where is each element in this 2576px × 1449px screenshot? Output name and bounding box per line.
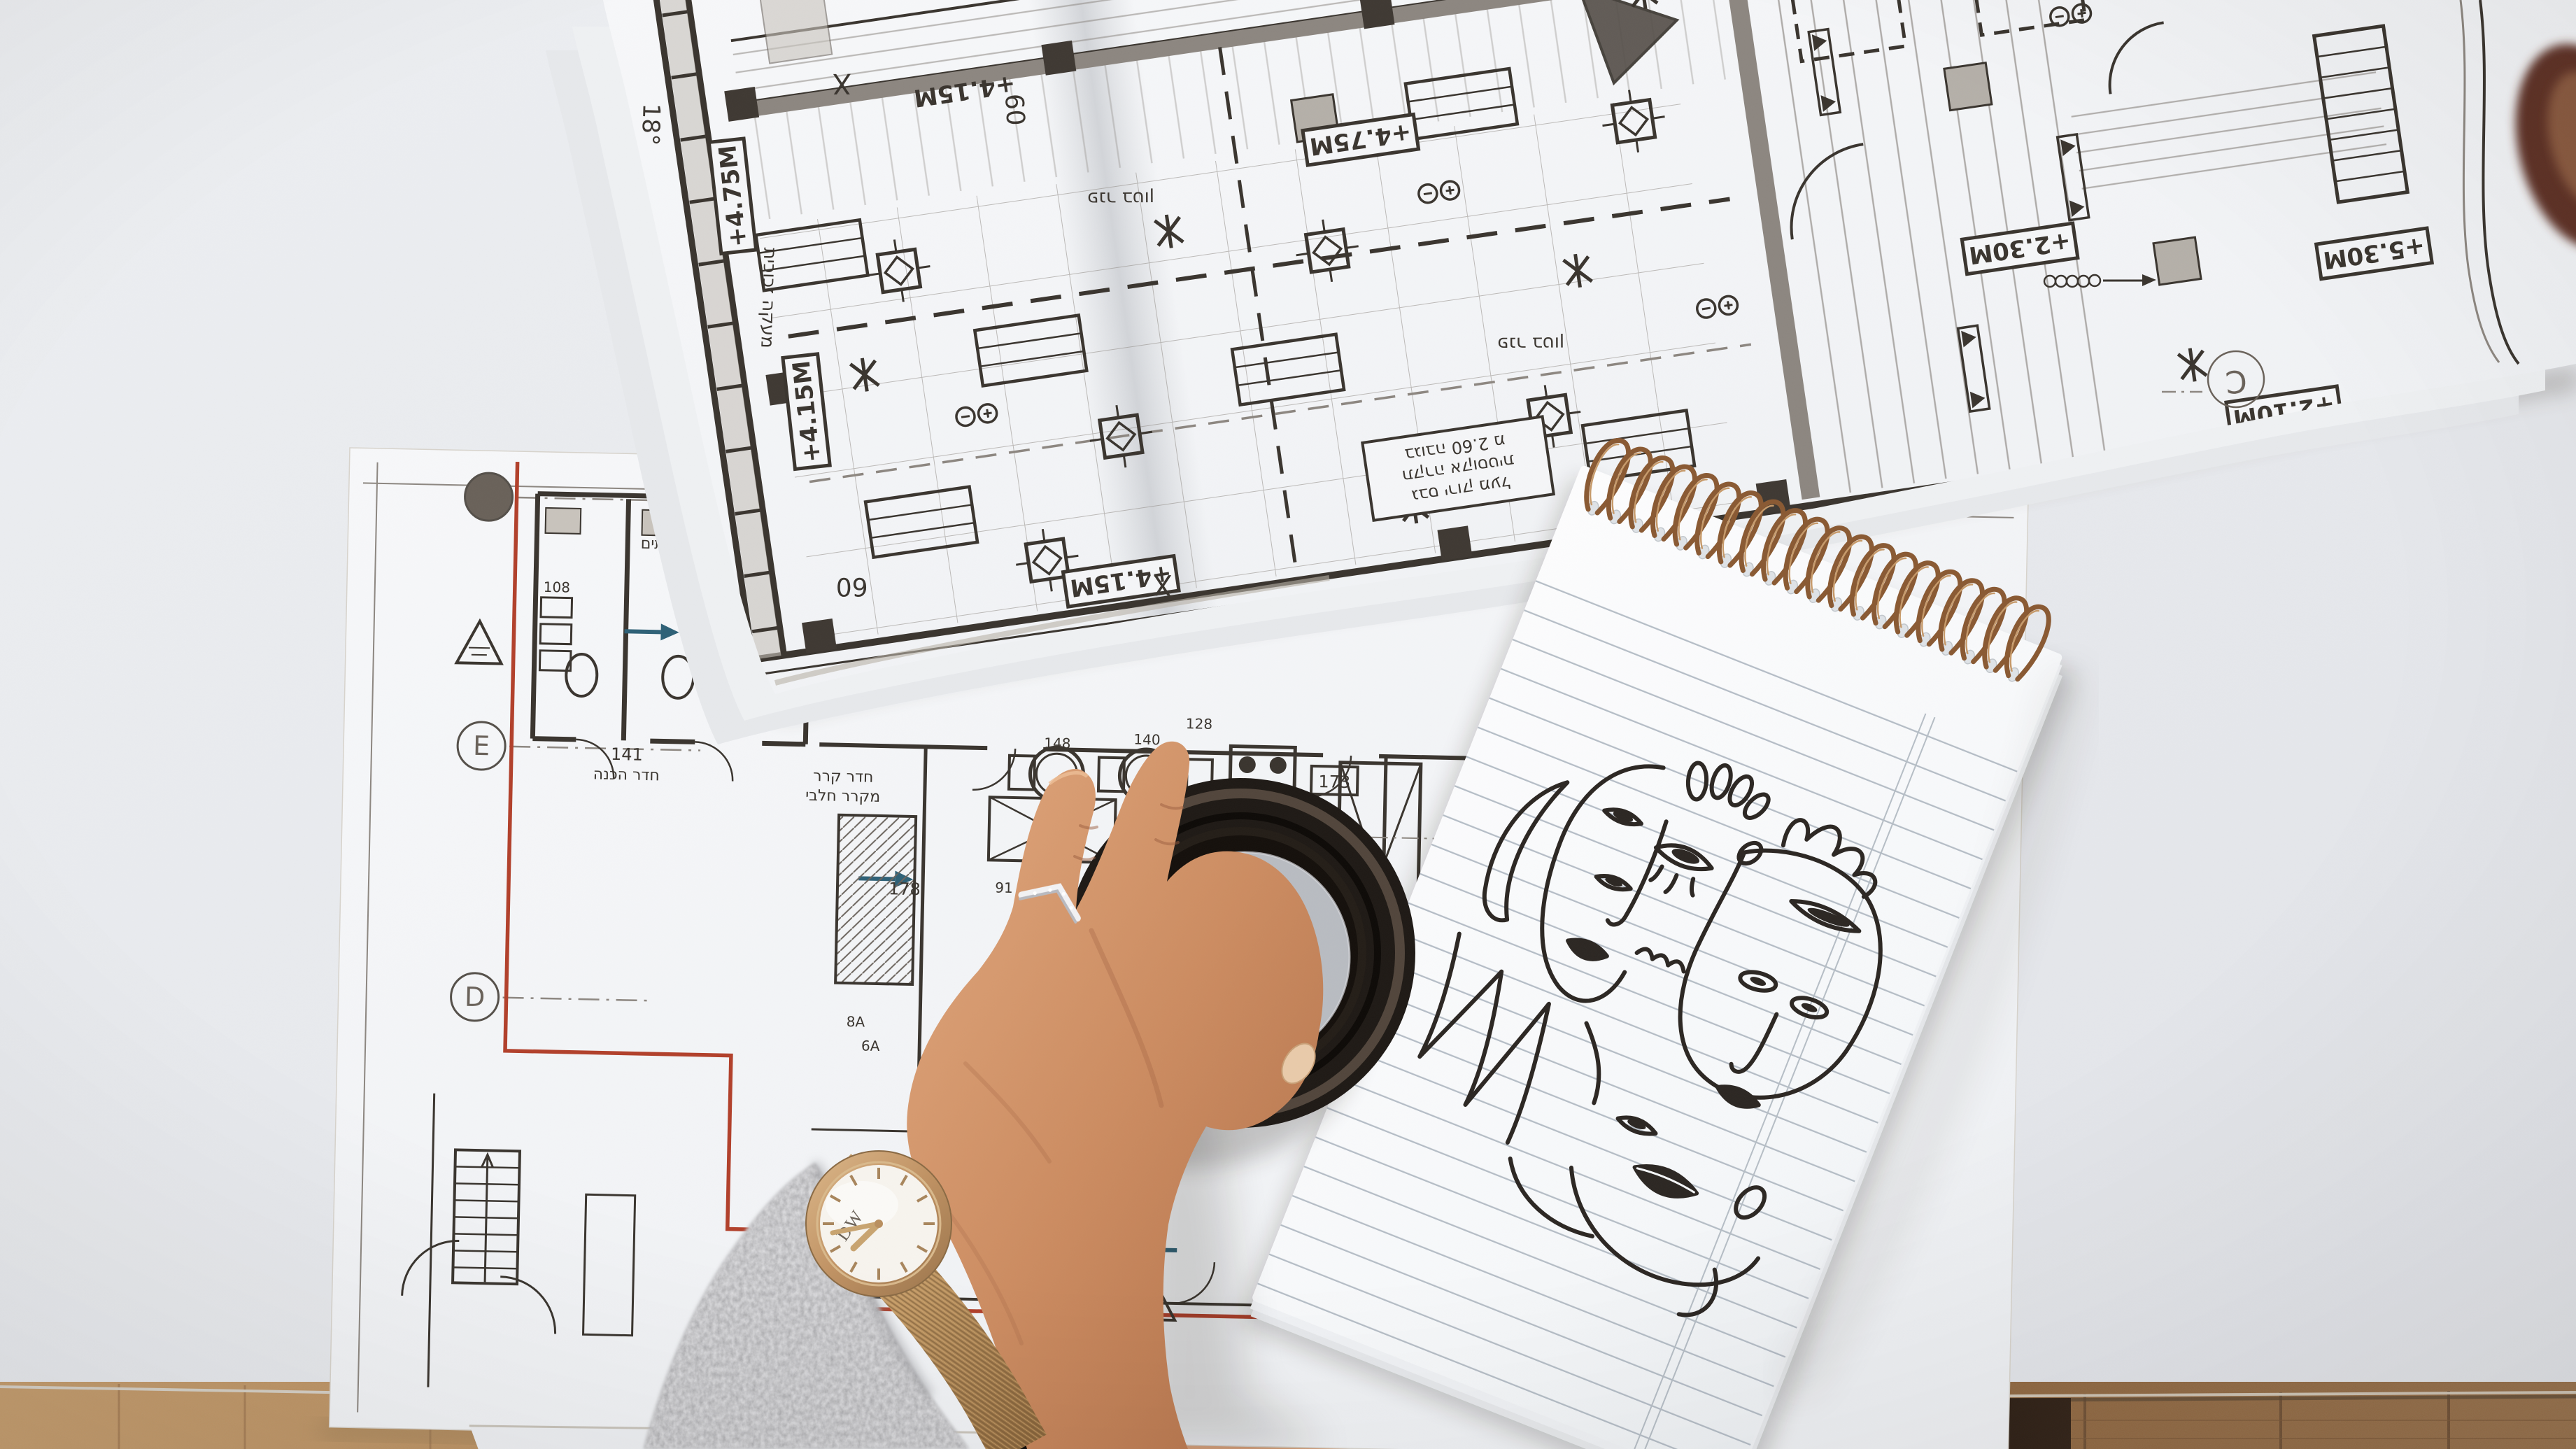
desk-photo: F E D שירותים (0, 0, 2576, 1449)
vignette (0, 0, 2576, 1449)
